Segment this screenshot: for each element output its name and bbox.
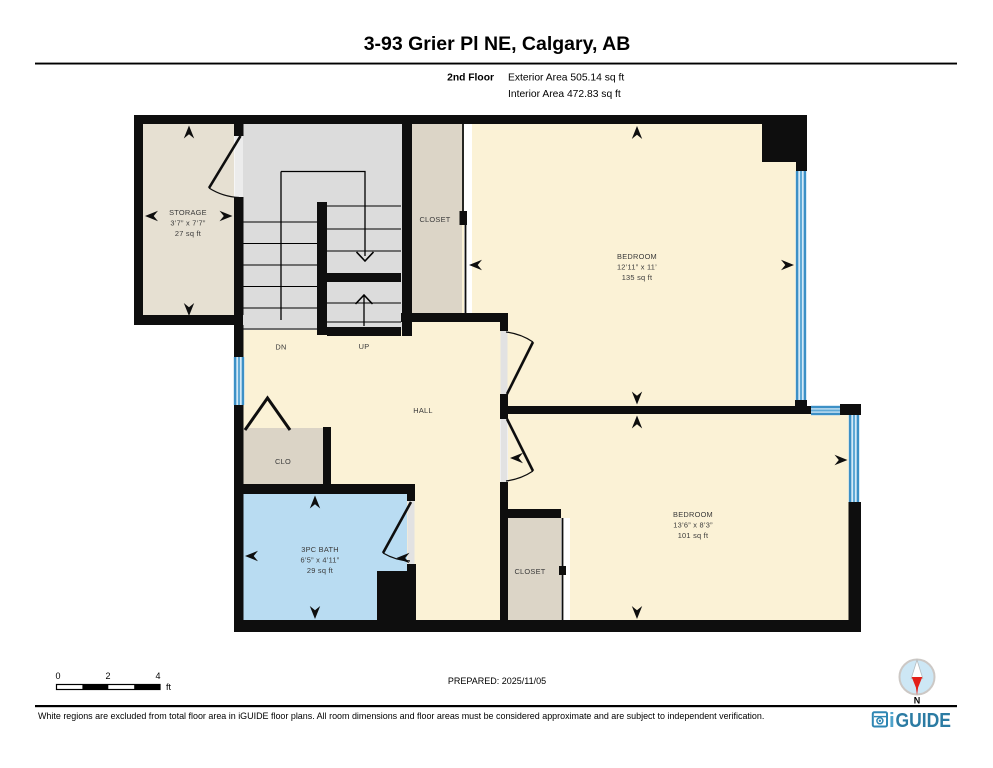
svg-text:CLOSET: CLOSET (419, 215, 450, 224)
svg-text:ft: ft (166, 682, 172, 692)
svg-text:STORAGE: STORAGE (169, 208, 207, 217)
svg-text:Exterior Area 505.14 sq ft: Exterior Area 505.14 sq ft (508, 73, 624, 84)
svg-text:White regions are excluded fro: White regions are excluded from total fl… (38, 711, 764, 721)
svg-text:CLO: CLO (275, 457, 291, 466)
svg-text:BEDROOM: BEDROOM (673, 510, 713, 519)
svg-text:4: 4 (155, 671, 160, 681)
svg-text:29 sq ft: 29 sq ft (307, 566, 333, 575)
svg-text:135 sq ft: 135 sq ft (622, 273, 653, 282)
svg-text:27 sq ft: 27 sq ft (175, 229, 201, 238)
svg-text:0: 0 (55, 671, 60, 681)
svg-text:HALL: HALL (413, 406, 433, 415)
svg-text:N: N (914, 696, 921, 706)
svg-text:DN: DN (275, 343, 286, 352)
svg-text:3’7” x 7’7”: 3’7” x 7’7” (170, 219, 205, 228)
svg-text:6’5” x 4’11”: 6’5” x 4’11” (300, 556, 339, 565)
svg-text:3-93 Grier Pl NE, Calgary, AB: 3-93 Grier Pl NE, Calgary, AB (364, 33, 631, 55)
svg-text:2: 2 (105, 671, 110, 681)
svg-text:12’11” x 11’: 12’11” x 11’ (617, 263, 657, 272)
svg-text:i: i (889, 709, 895, 732)
svg-text:3PC BATH: 3PC BATH (301, 545, 339, 554)
svg-text:CLOSET: CLOSET (514, 567, 545, 576)
svg-text:Interior Area 472.83 sq ft: Interior Area 472.83 sq ft (508, 89, 621, 100)
svg-text:PREPARED: 2025/11/05: PREPARED: 2025/11/05 (448, 676, 546, 686)
svg-text:BEDROOM: BEDROOM (617, 252, 657, 261)
svg-text:101 sq ft: 101 sq ft (678, 531, 709, 540)
svg-text:UP: UP (359, 342, 370, 351)
svg-text:13’6” x 8’3”: 13’6” x 8’3” (673, 521, 713, 530)
svg-text:2nd Floor: 2nd Floor (447, 73, 494, 84)
svg-text:GUIDE: GUIDE (896, 709, 952, 732)
